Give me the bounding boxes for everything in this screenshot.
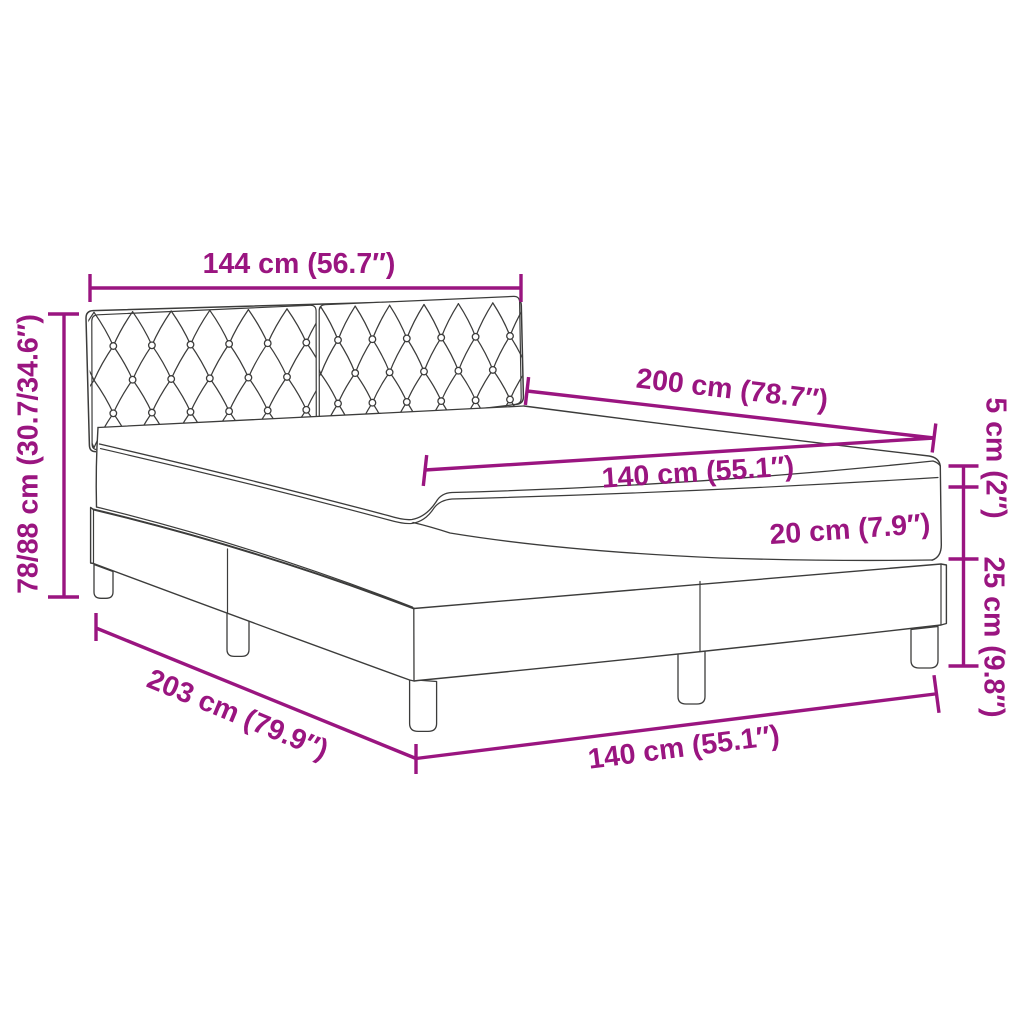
svg-text:78/88 cm (30.7/34.6″): 78/88 cm (30.7/34.6″) [13, 314, 45, 594]
svg-text:5 cm (2″): 5 cm (2″) [979, 397, 1011, 518]
svg-text:144 cm (56.7″): 144 cm (56.7″) [203, 248, 396, 280]
svg-text:25 cm (9.8″): 25 cm (9.8″) [977, 557, 1009, 718]
